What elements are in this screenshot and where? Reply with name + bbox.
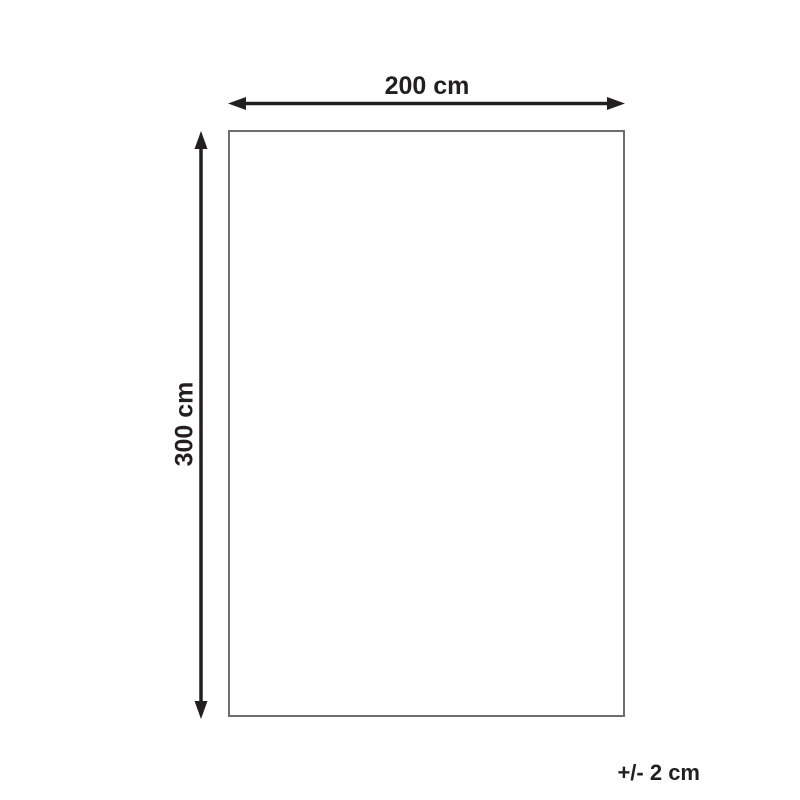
arrow-down-head-icon bbox=[195, 701, 208, 719]
product-outline-rect bbox=[229, 131, 624, 716]
tolerance-label: +/- 2 cm bbox=[617, 762, 700, 784]
height-dimension-label: 300 cm bbox=[173, 382, 198, 467]
dimension-diagram: 200 cm 300 cm +/- 2 cm bbox=[0, 0, 800, 800]
width-dimension-label: 200 cm bbox=[229, 74, 625, 99]
diagram-canvas bbox=[0, 0, 800, 800]
arrow-up-head-icon bbox=[195, 131, 208, 149]
